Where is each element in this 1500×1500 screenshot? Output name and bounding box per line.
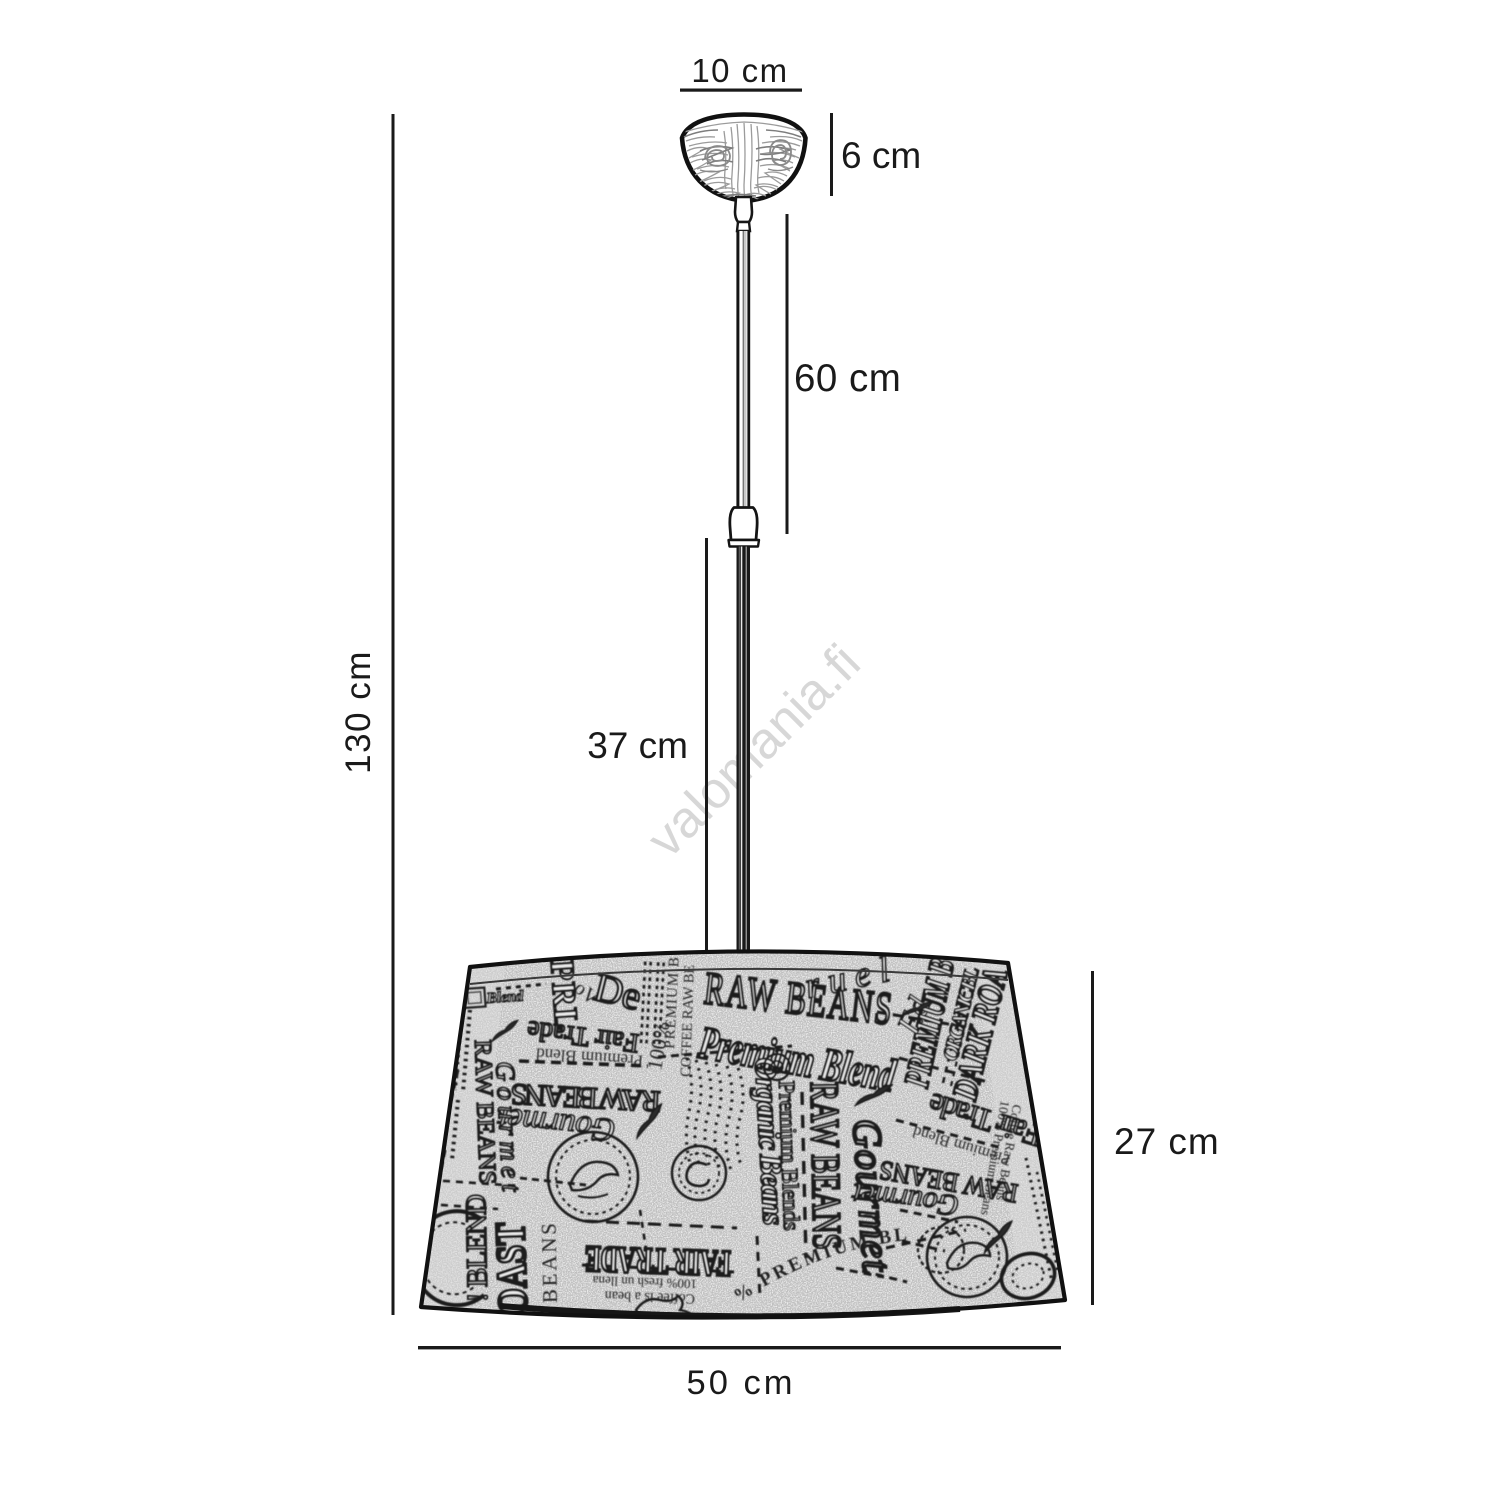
svg-text:27 cm: 27 cm [1114, 1121, 1220, 1162]
svg-text:50 cm: 50 cm [687, 1364, 796, 1402]
svg-text:130 cm: 130 cm [339, 650, 378, 774]
svg-text:10 cm: 10 cm [691, 52, 788, 89]
svg-text:37 cm: 37 cm [587, 725, 688, 766]
svg-text:RAW BEANS: RAW BEANS [469, 1039, 500, 1185]
svg-text:BEANS: BEANS [537, 1223, 562, 1303]
svg-text:60 cm: 60 cm [794, 357, 901, 400]
svg-text:Blend: Blend [485, 988, 524, 1007]
svg-text:Premium Blends: Premium Blends [774, 1080, 804, 1231]
svg-text:OAST: OAST [488, 1222, 537, 1316]
svg-text:6 cm: 6 cm [841, 135, 921, 176]
svg-text:Coffee is a bean: Coffee is a bean [604, 1287, 695, 1305]
svg-text:RAW BEANS: RAW BEANS [802, 1081, 850, 1250]
